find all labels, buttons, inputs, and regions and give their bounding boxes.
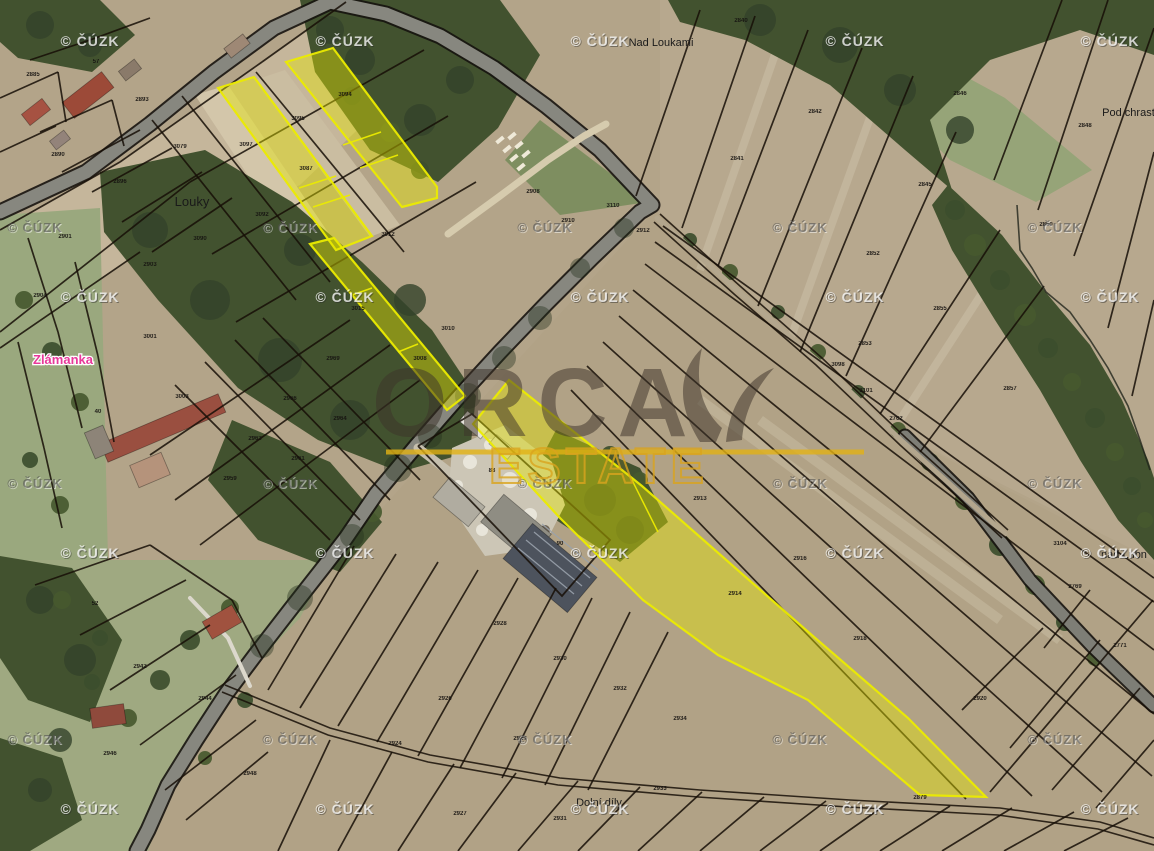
parcel-number: 2927 xyxy=(453,811,467,817)
cuzk-watermark: © ČÚZK xyxy=(772,732,827,747)
parcel-number: 2769 xyxy=(1068,584,1082,590)
parcel-number: 3012 xyxy=(381,232,395,238)
parcel-number: 2934 xyxy=(673,716,687,722)
parcel-number: 2840 xyxy=(734,18,748,24)
parcel-number: 2771 xyxy=(1113,643,1127,649)
cuzk-watermark: © ČÚZK xyxy=(7,732,62,747)
parcel-number: 3104 xyxy=(1053,541,1067,547)
parcel-number: 3095 xyxy=(291,116,305,122)
parcel-number: 3003 xyxy=(175,394,189,400)
cuzk-watermark: © ČÚZK xyxy=(825,544,884,561)
place-label: Pod chrastí xyxy=(1102,107,1154,119)
parcel-number: 2855 xyxy=(933,306,947,312)
cuzk-watermark: © ČÚZK xyxy=(1080,288,1139,305)
cuzk-watermark: © ČÚZK xyxy=(517,220,572,235)
parcel-number: 2846 xyxy=(953,91,967,97)
parcel-number: 2946 xyxy=(103,751,117,757)
cuzk-watermark: © ČÚZK xyxy=(262,220,317,235)
parcel-number: 3097 xyxy=(239,142,253,148)
place-label: Louky xyxy=(175,194,210,209)
parcel-number: 3087 xyxy=(299,166,313,172)
parcel-number: 2933 xyxy=(653,786,667,792)
cuzk-watermark: © ČÚZK xyxy=(315,32,374,49)
parcel-number: 2964 xyxy=(333,416,347,422)
aerial-cadastral-map: 2885572893289028962901290329043097309530… xyxy=(0,0,1154,851)
parcel-number: 2928 xyxy=(493,621,507,627)
parcel-number: 2914 xyxy=(728,591,742,597)
cuzk-watermark: © ČÚZK xyxy=(315,800,374,817)
parcel-number: 2913 xyxy=(693,496,707,502)
parcel-number: 2963 xyxy=(248,436,262,442)
cuzk-watermark: © ČÚZK xyxy=(60,800,119,817)
parcel-number: 2893 xyxy=(135,97,149,103)
parcel-number: 2932 xyxy=(613,686,627,692)
cuzk-watermark: © ČÚZK xyxy=(1027,220,1082,235)
parcel-number: 2969 xyxy=(326,356,340,362)
cuzk-watermark: © ČÚZK xyxy=(60,288,119,305)
parcel-number: 2920 xyxy=(973,696,987,702)
parcel-number: 3001 xyxy=(143,334,157,340)
parcel-number: 2918 xyxy=(853,636,867,642)
parcel-number: 2903 xyxy=(143,262,157,268)
cuzk-watermark: © ČÚZK xyxy=(262,476,317,491)
cuzk-watermark: © ČÚZK xyxy=(570,800,629,817)
parcel-number: 2959 xyxy=(223,476,237,482)
parcel-number: 57 xyxy=(93,59,100,65)
parcel-number: 3101 xyxy=(859,388,873,394)
parcel-number: 2908 xyxy=(526,189,540,195)
cuzk-watermark: © ČÚZK xyxy=(825,800,884,817)
cuzk-watermark: © ČÚZK xyxy=(825,32,884,49)
cuzk-watermark: © ČÚZK xyxy=(7,220,62,235)
logo-subtitle: ESTATE xyxy=(489,438,709,494)
parcel-number: 3090 xyxy=(193,236,207,242)
map-viewport[interactable]: 2885572893289028962901290329043097309530… xyxy=(0,0,1154,851)
place-label: Zlámanka xyxy=(33,352,94,367)
parcel-number: 3092 xyxy=(255,212,269,218)
parcel-number: 3010 xyxy=(441,326,455,332)
cuzk-watermark: © ČÚZK xyxy=(772,476,827,491)
parcel-number: 52 xyxy=(92,601,99,607)
cuzk-watermark: © ČÚZK xyxy=(1080,32,1139,49)
parcel-number: 2841 xyxy=(730,156,744,162)
parcel-number: 2853 xyxy=(858,341,872,347)
parcel-number: 2912 xyxy=(636,228,650,234)
parcel-number: 3094 xyxy=(338,92,352,98)
parcel-number: 2890 xyxy=(51,152,65,158)
cuzk-watermark: © ČÚZK xyxy=(60,544,119,561)
cuzk-watermark: © ČÚZK xyxy=(315,544,374,561)
parcel-number: 2948 xyxy=(243,771,257,777)
cuzk-watermark: © ČÚZK xyxy=(570,288,629,305)
cuzk-watermark: © ČÚZK xyxy=(1080,544,1139,561)
parcel-number: 2848 xyxy=(1078,123,1092,129)
parcel-number: 3079 xyxy=(173,144,187,150)
parcel-number: 2852 xyxy=(866,251,880,257)
parcel-number: 2879 xyxy=(913,795,927,801)
parcel-number: 2966 xyxy=(283,396,297,402)
cuzk-watermark: © ČÚZK xyxy=(570,32,629,49)
parcel-number: 2904 xyxy=(33,293,47,299)
parcel-number: 2924 xyxy=(388,741,402,747)
cuzk-watermark: © ČÚZK xyxy=(825,288,884,305)
parcel-number: 2942 xyxy=(133,664,147,670)
parcel-number: 2931 xyxy=(553,816,567,822)
cuzk-watermark: © ČÚZK xyxy=(570,544,629,561)
parcel-number: 3015 xyxy=(351,306,365,312)
parcel-number: 2842 xyxy=(808,109,822,115)
cuzk-watermark: © ČÚZK xyxy=(772,220,827,235)
parcel-number: 3110 xyxy=(606,203,620,209)
parcel-number: 2845 xyxy=(918,182,932,188)
cuzk-watermark: © ČÚZK xyxy=(60,32,119,49)
parcel-number: 3098 xyxy=(831,362,845,368)
cuzk-watermark: © ČÚZK xyxy=(262,732,317,747)
cuzk-watermark: © ČÚZK xyxy=(7,476,62,491)
parcel-number: 2961 xyxy=(291,456,305,462)
parcel-number: 2857 xyxy=(1003,386,1017,392)
parcel-number: 90 xyxy=(557,541,564,547)
parcel-number: 2885 xyxy=(26,72,40,78)
cuzk-watermark: © ČÚZK xyxy=(517,732,572,747)
parcel-number: 2762 xyxy=(889,416,903,422)
parcel-number: 40 xyxy=(95,409,102,415)
place-label: Nad Loukami xyxy=(629,37,694,49)
cuzk-watermark: © ČÚZK xyxy=(315,288,374,305)
cuzk-watermark: © ČÚZK xyxy=(1027,476,1082,491)
parcel-number: 2930 xyxy=(553,656,567,662)
parcel-number: 2916 xyxy=(793,556,807,562)
parcel-number: 2926 xyxy=(438,696,452,702)
parcel-number: 2944 xyxy=(198,696,212,702)
cuzk-watermark: © ČÚZK xyxy=(1080,800,1139,817)
parcel-number: 2896 xyxy=(113,179,127,185)
cuzk-watermark: © ČÚZK xyxy=(1027,732,1082,747)
